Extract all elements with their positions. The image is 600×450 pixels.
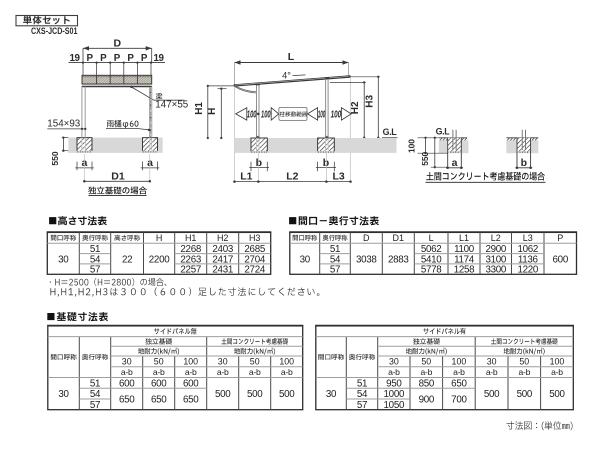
svg-text:2724: 2724 [244, 265, 265, 276]
svg-text:P: P [114, 53, 121, 64]
svg-text:19: 19 [69, 53, 80, 64]
svg-text:2431: 2431 [212, 265, 233, 276]
svg-text:L2: L2 [286, 170, 298, 182]
svg-text:D: D [114, 38, 122, 50]
svg-text:b: b [256, 157, 262, 169]
svg-text:600: 600 [151, 378, 167, 389]
svg-text:L1: L1 [459, 233, 469, 243]
svg-text:500: 500 [517, 389, 533, 400]
svg-text:2704: 2704 [244, 254, 265, 265]
svg-text:100: 100 [279, 356, 294, 366]
svg-text:54: 54 [90, 389, 101, 400]
svg-text:100: 100 [261, 109, 271, 120]
svg-text:P: P [557, 233, 563, 243]
svg-text:a: a [452, 157, 458, 169]
svg-text:57: 57 [357, 400, 367, 411]
svg-text:650: 650 [119, 394, 135, 405]
svg-text:a-b: a-b [153, 367, 165, 377]
svg-text:100: 100 [247, 109, 257, 120]
svg-text:1050: 1050 [384, 400, 405, 411]
svg-text:a-b: a-b [453, 367, 465, 377]
svg-text:50: 50 [250, 356, 260, 366]
svg-text:G.L: G.L [383, 127, 398, 137]
svg-text:a-b: a-b [281, 367, 293, 377]
svg-text:L: L [288, 51, 295, 63]
svg-text:850: 850 [419, 378, 435, 389]
svg-text:L2: L2 [491, 233, 501, 243]
svg-text:1136: 1136 [518, 254, 539, 265]
svg-text:30: 30 [58, 389, 69, 400]
svg-text:500: 500 [279, 389, 295, 400]
svg-text:1220: 1220 [517, 265, 538, 276]
svg-text:50: 50 [519, 356, 529, 366]
svg-text:154×93: 154×93 [47, 118, 81, 129]
svg-text:a-b: a-b [249, 367, 261, 377]
svg-text:54: 54 [330, 254, 341, 265]
svg-text:a-b: a-b [121, 367, 133, 377]
svg-text:H1: H1 [194, 102, 205, 115]
svg-text:500: 500 [484, 389, 500, 400]
svg-text:3300: 3300 [485, 265, 506, 276]
svg-text:30: 30 [58, 254, 69, 265]
svg-text:30: 30 [326, 389, 337, 400]
svg-text:4°: 4° [282, 70, 291, 80]
svg-text:500: 500 [215, 389, 231, 400]
svg-text:57: 57 [330, 265, 340, 276]
svg-text:30: 30 [487, 356, 497, 366]
svg-text:650: 650 [183, 394, 199, 405]
svg-text:30: 30 [300, 254, 311, 265]
svg-text:H2: H2 [217, 233, 229, 243]
svg-text:600: 600 [183, 378, 199, 389]
svg-text:900: 900 [419, 394, 435, 405]
svg-text:D1: D1 [393, 233, 405, 243]
svg-text:2417: 2417 [212, 254, 233, 265]
svg-text:P: P [127, 53, 134, 64]
svg-text:a-b: a-b [421, 367, 433, 377]
svg-text:5410: 5410 [421, 254, 442, 265]
svg-text:30: 30 [218, 356, 228, 366]
svg-text:51: 51 [357, 378, 367, 389]
svg-text:H: H [207, 108, 218, 115]
svg-text:57: 57 [90, 265, 100, 276]
svg-text:D1: D1 [111, 170, 125, 182]
svg-text:a-b: a-b [217, 367, 229, 377]
svg-text:3100: 3100 [485, 254, 506, 265]
svg-text:600: 600 [553, 254, 569, 265]
svg-text:b: b [323, 157, 329, 169]
svg-text:b: b [521, 157, 527, 169]
svg-text:19: 19 [153, 53, 164, 64]
svg-text:5778: 5778 [421, 265, 442, 276]
svg-text:H: H [156, 233, 163, 243]
svg-text:100: 100 [183, 356, 198, 366]
svg-text:550: 550 [420, 151, 430, 165]
svg-text:CXS-JCD-S01: CXS-JCD-S01 [31, 26, 78, 37]
svg-text:100: 100 [452, 356, 467, 366]
svg-text:a-b: a-b [388, 367, 400, 377]
svg-text:L1: L1 [240, 170, 252, 182]
svg-text:a-b: a-b [519, 367, 531, 377]
svg-text:L3: L3 [332, 170, 344, 182]
svg-text:500: 500 [247, 389, 263, 400]
svg-text:100: 100 [331, 109, 342, 120]
svg-text:L3: L3 [523, 233, 533, 243]
svg-text:600: 600 [119, 378, 135, 389]
svg-text:100: 100 [407, 139, 417, 153]
svg-text:22: 22 [122, 254, 132, 265]
svg-text:950: 950 [386, 378, 402, 389]
svg-text:G.L: G.L [436, 127, 451, 137]
svg-text:a-b: a-b [185, 367, 197, 377]
svg-text:2200: 2200 [149, 254, 170, 265]
svg-text:50: 50 [421, 356, 431, 366]
svg-text:1174: 1174 [454, 254, 475, 265]
svg-text:H1: H1 [185, 233, 197, 243]
svg-text:2263: 2263 [180, 254, 201, 265]
svg-text:550: 550 [50, 151, 60, 166]
svg-text:57: 57 [90, 400, 100, 411]
svg-text:54: 54 [90, 254, 101, 265]
svg-text:100: 100 [318, 109, 326, 120]
svg-text:100: 100 [550, 356, 565, 366]
svg-text:L: L [429, 233, 434, 243]
svg-text:30: 30 [122, 356, 132, 366]
svg-text:P: P [141, 53, 148, 64]
svg-text:D: D [363, 233, 370, 243]
svg-text:30: 30 [389, 356, 399, 366]
svg-text:650: 650 [151, 394, 167, 405]
svg-text:51: 51 [90, 378, 100, 389]
svg-text:H2: H2 [350, 101, 361, 114]
svg-text:2257: 2257 [180, 265, 201, 276]
svg-text:P: P [87, 53, 94, 64]
svg-text:50: 50 [154, 356, 164, 366]
svg-text:a-b: a-b [551, 367, 563, 377]
svg-text:H3: H3 [365, 94, 376, 107]
svg-text:650: 650 [451, 378, 467, 389]
svg-text:3038: 3038 [356, 254, 377, 265]
svg-text:500: 500 [549, 389, 565, 400]
svg-text:54: 54 [357, 389, 368, 400]
svg-text:1000: 1000 [384, 389, 405, 400]
svg-text:1258: 1258 [454, 265, 475, 276]
svg-text:H3: H3 [249, 233, 261, 243]
svg-text:147×55: 147×55 [155, 100, 189, 111]
svg-text:2883: 2883 [388, 254, 409, 265]
svg-text:a-b: a-b [486, 367, 498, 377]
svg-text:P: P [100, 53, 107, 64]
svg-text:700: 700 [451, 394, 467, 405]
